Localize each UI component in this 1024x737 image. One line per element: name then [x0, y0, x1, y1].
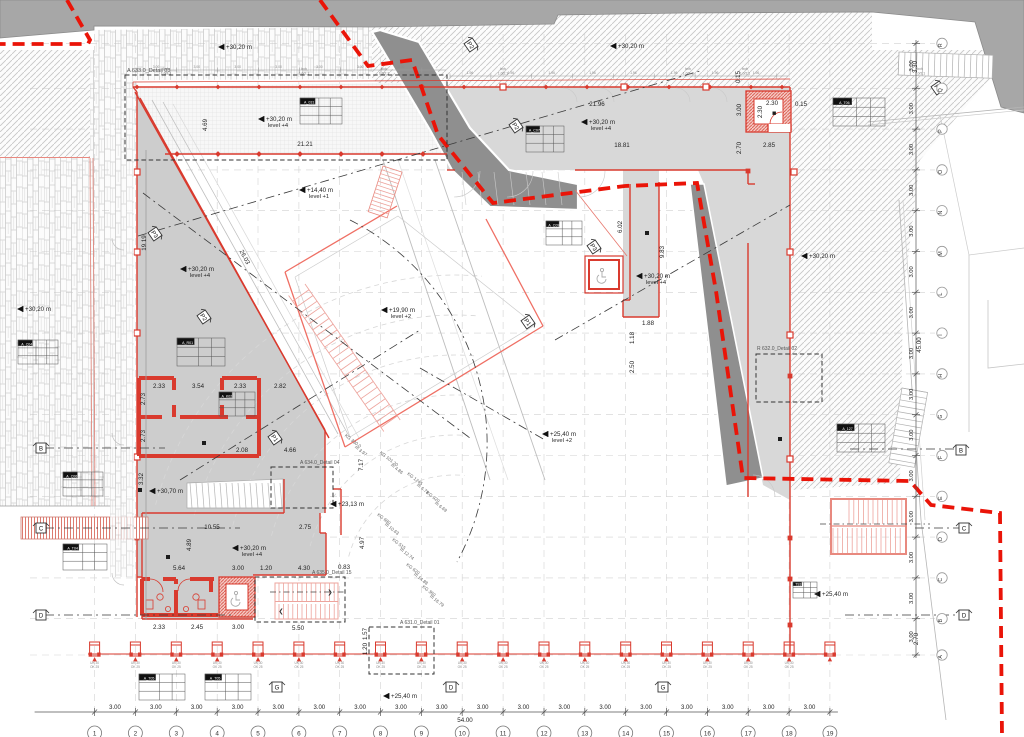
svg-text:1.96: 1.96 [712, 71, 719, 75]
svg-text:A_T05: A_T05 [144, 677, 155, 681]
svg-text:2.33: 2.33 [234, 383, 247, 390]
svg-text:3.00: 3.00 [316, 65, 323, 69]
svg-text:C: C [962, 526, 967, 532]
svg-text:3.00: 3.00 [909, 266, 915, 277]
svg-text:13: 13 [581, 731, 589, 737]
svg-text:OK 25: OK 25 [621, 665, 630, 669]
svg-text:3.32: 3.32 [138, 472, 145, 485]
svg-text:11: 11 [500, 731, 507, 737]
svg-text:1.96: 1.96 [548, 71, 555, 75]
svg-text:L: L [938, 293, 944, 296]
svg-text:bxh: bxh [742, 67, 748, 71]
svg-text:3.00: 3.00 [477, 705, 489, 711]
svg-text:3.00: 3.00 [909, 552, 915, 563]
svg-text:OK 25: OK 25 [580, 665, 589, 669]
svg-text:OK 25: OK 25 [703, 665, 712, 669]
svg-text:3.00: 3.00 [273, 705, 285, 711]
svg-text:3.00: 3.00 [909, 144, 915, 155]
svg-text:level +4: level +4 [646, 280, 667, 286]
svg-text:3.00: 3.00 [909, 389, 915, 400]
svg-text:6: 6 [297, 731, 301, 737]
svg-text:3.00: 3.00 [909, 470, 915, 481]
svg-text:1.0/2.1: 1.0/2.1 [498, 72, 508, 76]
svg-text:2.33: 2.33 [153, 383, 166, 390]
svg-text:A_T05: A_T05 [210, 677, 221, 681]
svg-text:+30,20 m: +30,20 m [226, 44, 252, 51]
svg-text:3.00: 3.00 [357, 65, 364, 69]
svg-text:+30,20 m: +30,20 m [188, 266, 214, 273]
svg-text:1.57: 1.57 [362, 627, 369, 640]
svg-text:0.15: 0.15 [795, 101, 808, 108]
svg-text:OK 25: OK 25 [499, 665, 508, 669]
svg-text:3.00: 3.00 [232, 624, 245, 631]
svg-text:Q: Q [938, 88, 944, 92]
svg-text:level +2: level +2 [552, 438, 572, 444]
svg-text:2.73: 2.73 [140, 429, 147, 442]
svg-text:bxh: bxh [917, 67, 923, 71]
svg-text:3.00: 3.00 [232, 705, 244, 711]
svg-text:5.50: 5.50 [292, 625, 305, 632]
svg-text:OK 25: OK 25 [539, 665, 548, 669]
svg-text:OK 25: OK 25 [131, 665, 140, 669]
svg-text:4.30: 4.30 [298, 565, 311, 572]
svg-text:OK 25: OK 25 [458, 665, 467, 669]
svg-text:1.0/2.1: 1.0/2.1 [740, 72, 750, 76]
svg-text:OK 25: OK 25 [213, 665, 222, 669]
svg-text:+30,20 m: +30,20 m [240, 545, 266, 552]
svg-text:21.21: 21.21 [297, 141, 313, 148]
svg-text:45.00: 45.00 [916, 337, 923, 353]
svg-text:3.54: 3.54 [192, 383, 205, 390]
svg-text:1.96: 1.96 [589, 71, 596, 75]
svg-text:D: D [962, 613, 967, 619]
svg-text:10: 10 [459, 731, 467, 737]
svg-text:+25,40 m: +25,40 m [391, 693, 417, 700]
svg-text:level +1: level +1 [309, 194, 329, 200]
svg-text:level +4: level +4 [268, 123, 289, 129]
svg-text:3.00: 3.00 [909, 593, 915, 604]
svg-text:3.00: 3.00 [909, 60, 915, 71]
svg-text:3.00: 3.00 [193, 65, 200, 69]
svg-text:+25,40 m: +25,40 m [822, 591, 848, 598]
svg-text:1.0/2.1: 1.0/2.1 [299, 72, 309, 76]
svg-text:bxh: bxh [301, 67, 307, 71]
svg-text:0.83: 0.83 [338, 564, 351, 571]
svg-text:OK 25: OK 25 [294, 665, 303, 669]
svg-text:3.00: 3.00 [909, 225, 915, 236]
svg-text:19.19: 19.19 [141, 235, 148, 251]
svg-text:D: D [449, 685, 454, 691]
svg-text:1: 1 [93, 731, 97, 737]
svg-text:2.85: 2.85 [763, 142, 776, 149]
svg-text:3.00: 3.00 [736, 103, 743, 116]
svg-text:2.30: 2.30 [766, 100, 779, 107]
svg-text:10.55: 10.55 [204, 524, 220, 531]
svg-text:3.00: 3.00 [275, 65, 282, 69]
svg-text:3.00: 3.00 [150, 705, 162, 711]
svg-text:OK 25: OK 25 [417, 665, 426, 669]
svg-text:3.00: 3.00 [599, 705, 611, 711]
svg-text:A_K02: A_K02 [222, 394, 233, 398]
svg-text:level +4: level +4 [242, 552, 263, 558]
svg-text:T93: T93 [795, 583, 801, 587]
svg-text:+19,90 m: +19,90 m [389, 307, 415, 314]
svg-text:D: D [39, 613, 44, 619]
svg-text:3.00: 3.00 [395, 705, 407, 711]
svg-text:bxh: bxh [685, 67, 691, 71]
svg-text:1.0/2.1: 1.0/2.1 [915, 72, 925, 76]
svg-text:3.00: 3.00 [722, 705, 734, 711]
svg-text:2.82: 2.82 [274, 383, 287, 390]
svg-text:bxh: bxh [500, 67, 506, 71]
svg-text:❮: ❮ [278, 608, 283, 615]
svg-text:A_R01: A_R01 [182, 341, 193, 345]
svg-text:A_C07: A_C07 [529, 129, 540, 133]
svg-text:1.96: 1.96 [508, 71, 515, 75]
svg-text:3.00: 3.00 [909, 103, 915, 114]
svg-text:OK 25: OK 25 [376, 665, 385, 669]
svg-text:H: H [938, 374, 944, 378]
svg-text:M: M [938, 251, 944, 255]
svg-text:OK 25: OK 25 [253, 665, 262, 669]
svg-text:+14,40 m: +14,40 m [307, 187, 333, 194]
svg-text:O: O [938, 170, 944, 174]
svg-text:18.81: 18.81 [614, 142, 630, 149]
svg-text:19: 19 [826, 731, 834, 737]
svg-text:R: R [938, 43, 944, 47]
svg-text:A_C04: A_C04 [21, 342, 32, 346]
svg-text:OK 25: OK 25 [335, 665, 344, 669]
svg-text:N: N [938, 210, 944, 214]
svg-text:D: D [938, 537, 944, 541]
svg-text:17: 17 [745, 731, 753, 737]
svg-text:3.00: 3.00 [518, 705, 530, 711]
svg-text:4.97: 4.97 [359, 536, 366, 549]
svg-text:OK 25: OK 25 [662, 665, 671, 669]
svg-text:3.00: 3.00 [354, 705, 366, 711]
svg-text:2.08: 2.08 [236, 447, 249, 454]
svg-text:+23,13 m: +23,13 m [338, 501, 364, 508]
svg-text:level +4: level +4 [591, 126, 612, 132]
svg-text:A: A [938, 655, 944, 659]
svg-text:3.00: 3.00 [109, 705, 121, 711]
svg-text:F: F [938, 456, 944, 459]
svg-text:level +4: level +4 [190, 273, 211, 279]
svg-text:❯: ❯ [327, 589, 332, 596]
svg-text:3.00: 3.00 [234, 65, 241, 69]
svg-text:3.00: 3.00 [191, 705, 203, 711]
svg-text:A_C09: A_C09 [548, 223, 559, 227]
svg-text:4.69: 4.69 [202, 118, 209, 131]
svg-text:5: 5 [256, 731, 260, 737]
svg-text:4: 4 [215, 731, 219, 737]
svg-text:15: 15 [663, 731, 671, 737]
svg-text:1.18: 1.18 [629, 331, 636, 344]
svg-text:1.96: 1.96 [630, 71, 637, 75]
svg-text:3.00: 3.00 [909, 185, 915, 196]
svg-text:2.33: 2.33 [153, 624, 166, 631]
svg-text:3.00: 3.00 [436, 705, 448, 711]
svg-text:E: E [938, 496, 944, 500]
svg-text:OK 25: OK 25 [90, 665, 99, 669]
svg-text:C: C [39, 526, 44, 532]
svg-text:16: 16 [704, 731, 712, 737]
svg-text:1.0/2.1: 1.0/2.1 [161, 72, 171, 76]
svg-text:OK 25: OK 25 [172, 665, 181, 669]
svg-text:1.96: 1.96 [753, 71, 760, 75]
svg-text:bxh: bxh [381, 67, 387, 71]
svg-text:14: 14 [622, 731, 630, 737]
svg-text:3.00: 3.00 [909, 348, 915, 359]
svg-text:12: 12 [540, 731, 548, 737]
svg-text:2.50: 2.50 [629, 360, 636, 373]
svg-text:3.00: 3.00 [909, 307, 915, 318]
svg-text:8: 8 [379, 731, 383, 737]
svg-text:9: 9 [420, 731, 424, 737]
svg-text:21.96: 21.96 [589, 101, 605, 108]
svg-text:2.75: 2.75 [299, 524, 312, 531]
svg-text:2: 2 [134, 731, 138, 737]
svg-text:A_C06: A_C06 [66, 474, 77, 478]
svg-text:3.00: 3.00 [909, 429, 915, 440]
svg-text:2.45: 2.45 [191, 624, 204, 631]
svg-text:3: 3 [175, 731, 179, 737]
svg-text:1.96: 1.96 [671, 71, 678, 75]
svg-text:2.73: 2.73 [140, 392, 147, 405]
svg-text:+30,20 m: +30,20 m [809, 253, 835, 260]
svg-text:+25,40 m: +25,40 m [550, 431, 576, 438]
svg-text:+30,20 m: +30,20 m [644, 273, 670, 280]
svg-text:C: C [938, 578, 944, 582]
svg-text:4.89: 4.89 [186, 538, 193, 551]
svg-text:2.30: 2.30 [757, 105, 764, 118]
svg-text:A 634.0_Detail 04: A 634.0_Detail 04 [300, 460, 340, 466]
svg-text:G: G [938, 415, 944, 419]
svg-text:6.02: 6.02 [617, 220, 624, 233]
svg-text:3.00: 3.00 [681, 705, 693, 711]
svg-text:A_T04: A_T04 [67, 547, 78, 551]
svg-text:G: G [661, 685, 666, 691]
svg-text:A_031: A_031 [304, 101, 314, 105]
svg-text:3.00: 3.00 [640, 705, 652, 711]
svg-text:bxh: bxh [163, 67, 169, 71]
svg-text:3.00: 3.00 [763, 705, 775, 711]
svg-text:4.66: 4.66 [284, 447, 297, 454]
svg-text:9.83: 9.83 [659, 245, 666, 258]
svg-text:1.88: 1.88 [642, 320, 655, 327]
svg-text:P: P [938, 129, 944, 133]
svg-text:I: I [938, 334, 944, 335]
svg-text:A_127: A_127 [842, 427, 852, 431]
svg-text:7: 7 [338, 731, 342, 737]
svg-text:3.00: 3.00 [909, 511, 915, 522]
svg-text:3.00: 3.00 [909, 631, 915, 642]
svg-text:7.17: 7.17 [358, 458, 365, 471]
svg-text:3.00: 3.00 [804, 705, 816, 711]
svg-text:3.00: 3.00 [398, 65, 405, 69]
svg-text:54.00: 54.00 [457, 717, 473, 724]
svg-text:R 632.0_Detail 02: R 632.0_Detail 02 [757, 346, 797, 352]
svg-text:A_T06: A_T06 [839, 101, 850, 105]
svg-text:G: G [275, 685, 280, 691]
svg-text:B: B [39, 446, 43, 452]
svg-text:3.00: 3.00 [313, 705, 325, 711]
svg-text:B: B [938, 618, 944, 622]
svg-text:B: B [959, 448, 963, 454]
svg-text:1.20: 1.20 [362, 642, 369, 655]
svg-text:1.20: 1.20 [260, 565, 273, 572]
svg-text:3.00: 3.00 [232, 565, 245, 572]
svg-text:A 631.0_Detail 01: A 631.0_Detail 01 [400, 620, 440, 626]
svg-text:+30,20 m: +30,20 m [618, 43, 644, 50]
svg-text:OK 25: OK 25 [785, 665, 794, 669]
svg-text:1.96: 1.96 [467, 71, 474, 75]
svg-text:+30,20 m: +30,20 m [589, 119, 615, 126]
svg-text:OK 25: OK 25 [744, 665, 753, 669]
svg-text:2.70: 2.70 [736, 141, 743, 154]
svg-text:+30,70 m: +30,70 m [157, 488, 183, 495]
svg-text:+30,20 m: +30,20 m [25, 306, 51, 313]
svg-text:level +2: level +2 [391, 314, 411, 320]
svg-text:3.00: 3.00 [559, 705, 571, 711]
svg-text:5.64: 5.64 [173, 565, 186, 572]
svg-text:1.0/2.1: 1.0/2.1 [379, 72, 389, 76]
svg-text:+30,20 m: +30,20 m [266, 116, 292, 123]
svg-text:18: 18 [786, 731, 794, 737]
svg-text:1.0/2.1: 1.0/2.1 [683, 72, 693, 76]
